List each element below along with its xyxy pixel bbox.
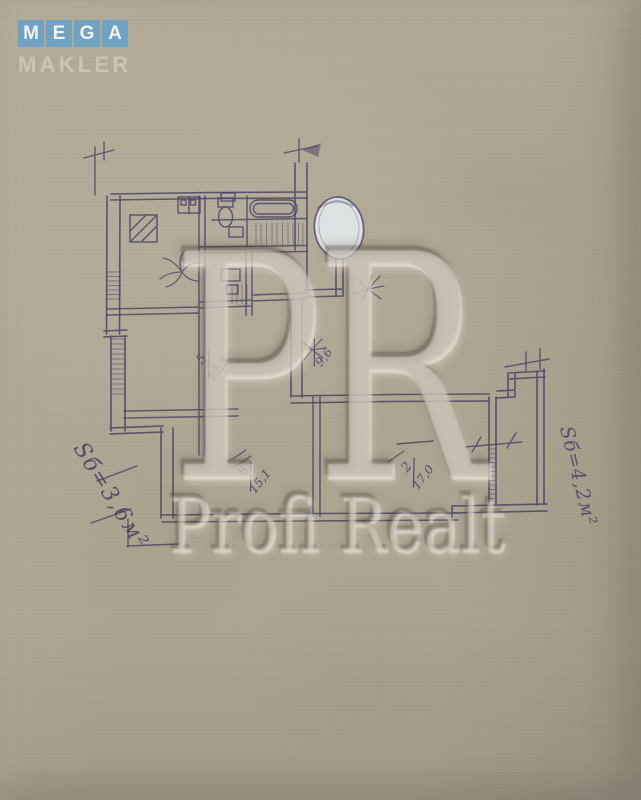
vent-shaft-hatch <box>130 215 157 242</box>
tile-hatch-bathroom <box>256 223 303 245</box>
toilet-tank <box>218 198 233 207</box>
logo-word-mega: M E G A <box>18 20 131 47</box>
whiteout-oval <box>311 194 367 262</box>
room-area: 15,1 <box>246 466 273 496</box>
wall-top <box>111 192 306 200</box>
balcony-area-right: Sб=4,2м² <box>555 424 601 528</box>
balcony-area-left: Sб=3,6м² <box>68 438 153 554</box>
plumbing-fixtures <box>178 193 297 294</box>
hatch-marks <box>106 223 496 499</box>
wall-left-upper <box>107 196 121 334</box>
bathtub-inner <box>254 204 294 215</box>
vent-shaft-symbol <box>130 215 157 242</box>
dimension-room-right <box>397 441 433 444</box>
ticks-top-left <box>84 142 114 195</box>
wall-room-cd-divider <box>313 397 320 516</box>
wall-bottom <box>162 513 458 522</box>
wc-sink <box>221 269 240 281</box>
wall-room-b-bottom <box>124 409 238 418</box>
logo-square-a: A <box>102 20 128 47</box>
tick-flag <box>302 143 321 157</box>
room-number: 5 <box>194 352 211 368</box>
wall-loggia-divider <box>489 397 496 504</box>
room-label-bottom-right: 2 17,0 <box>394 450 437 492</box>
wall-left-step <box>104 330 127 337</box>
ticks-top-right <box>505 349 549 371</box>
door-scribble <box>353 275 384 302</box>
wall-hall-right <box>291 300 302 397</box>
logo-square-e: E <box>46 20 72 47</box>
wall-left-lower <box>111 336 125 431</box>
wall-bottom-right-wing <box>452 504 547 521</box>
label-scuffs-d <box>388 451 404 462</box>
plant-doodle <box>160 250 201 287</box>
logo-square-m: M <box>18 20 44 47</box>
window-hatch-left-lower <box>111 339 125 394</box>
toilet-bowl <box>219 207 233 227</box>
window-hatch-loggia <box>489 449 496 499</box>
room-label-bottom-middle: 6 15,1 <box>231 455 274 497</box>
wall-hall-top <box>252 293 307 301</box>
logo-square-g: G <box>74 20 100 47</box>
wall-bottom-left-horizontal <box>110 426 163 434</box>
wall-right-outer <box>537 369 544 505</box>
room-number: 2 <box>398 460 416 477</box>
logo-word-makler: MAKLER <box>18 52 131 78</box>
bath-sink <box>229 227 243 237</box>
stove-burner-2 <box>191 200 196 205</box>
wall-room-a-bottom <box>107 307 199 315</box>
room-label-living: 5 12,3 <box>189 342 232 384</box>
floor-plan-drawing: 5 12,3 4 9,6 6 15,1 2 17,0 Sб=3,6м² Sб=4 <box>0 0 641 800</box>
wall-bottom-left-vertical <box>161 428 173 518</box>
floor-plan-photo: 5 12,3 4 9,6 6 15,1 2 17,0 Sб=3,6м² Sб=4 <box>0 0 641 800</box>
wall-wc-bottom <box>199 300 252 308</box>
stove-burner-1 <box>181 200 186 205</box>
wall-block-bottom <box>199 246 307 254</box>
room-number: 6 <box>236 464 253 480</box>
mega-makler-logo: M E G A MAKLER <box>18 20 131 78</box>
dimension-ticks <box>84 139 549 547</box>
wall-block-inner <box>212 219 307 221</box>
window-hatch-left-upper <box>106 272 121 299</box>
